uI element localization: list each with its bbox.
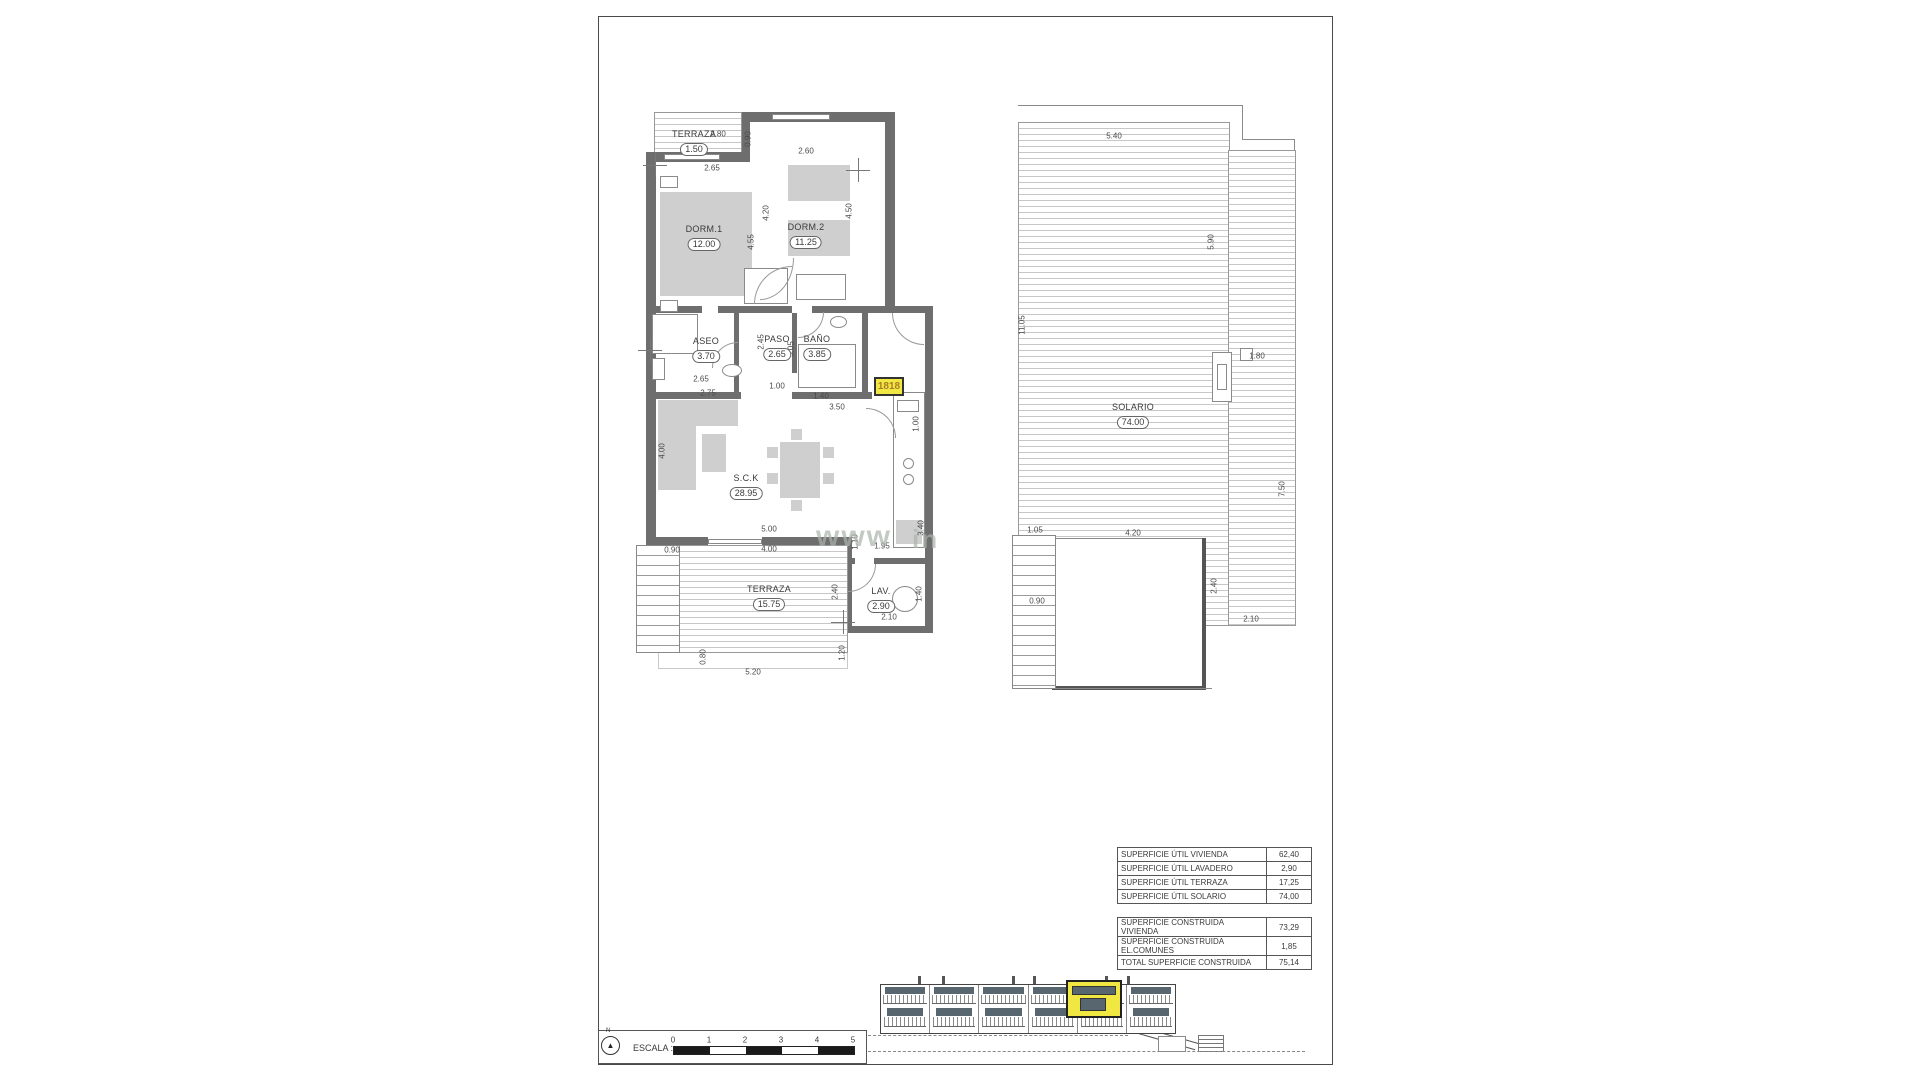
furniture-sofa — [696, 400, 738, 426]
furniture-dining-table — [780, 442, 820, 498]
surface-construida-table: SUPERFICIE CONSTRUIDA VIVIENDA 73,29 SUP… — [1117, 917, 1312, 970]
dim-label: 2.65 — [693, 375, 709, 384]
dim-label: 1.40 — [813, 392, 829, 401]
balcony-railing — [1081, 1017, 1123, 1027]
room-area-badge: 2.65 — [763, 348, 791, 360]
chimney — [1033, 976, 1036, 984]
wall-segment — [890, 306, 933, 313]
table-cell-label: SUPERFICIE ÚTIL TERRAZA — [1118, 876, 1267, 890]
elevation-bay — [1127, 985, 1175, 1033]
table-row: SUPERFICIE CONSTRUIDA EL.COMUNES 1,85 — [1118, 937, 1312, 956]
table-row: SUPERFICIE ÚTIL VIVIENDA 62,40 — [1118, 848, 1312, 862]
wall-segment — [845, 626, 933, 633]
wall-segment — [1202, 538, 1206, 690]
dim-label: 5.00 — [761, 525, 777, 534]
scale-segment — [710, 1047, 746, 1054]
dim-label: 4.00 — [761, 545, 777, 554]
chimney — [942, 976, 945, 984]
kitchen-sink — [897, 400, 919, 412]
dim-label: 4.50 — [845, 203, 854, 219]
room-label-solario: SOLARIO 74.00 — [1112, 402, 1154, 431]
wall-segment — [792, 392, 872, 399]
table-cell-label: SUPERFICIE ÚTIL LAVADERO — [1118, 862, 1267, 876]
wall-segment — [718, 306, 792, 313]
table-row: SUPERFICIE ÚTIL LAVADERO 2,90 — [1118, 862, 1312, 876]
balcony-railing — [933, 1017, 975, 1027]
building-elevation — [880, 984, 1176, 1034]
room-label-paso: PASO 2.65 — [763, 334, 791, 363]
stairs — [1012, 535, 1056, 689]
balcony-glazing — [934, 987, 974, 994]
dim-label: 1.40 — [915, 586, 924, 602]
window-glazing — [887, 1008, 923, 1016]
room-area-badge: 3.70 — [692, 350, 720, 362]
dim-label: 0.90 — [1029, 597, 1045, 606]
balcony-railing — [932, 995, 976, 1004]
scale-bar — [673, 1046, 855, 1055]
furniture-chair — [791, 429, 802, 440]
dim-label: 2.75 — [700, 389, 716, 398]
table-cell-label: SUPERFICIE ÚTIL SOLARIO — [1118, 890, 1267, 904]
watermark-text: www — [816, 520, 892, 554]
surface-util-table: SUPERFICIE ÚTIL VIVIENDA 62,40 SUPERFICI… — [1117, 847, 1312, 904]
elevation-bay — [930, 985, 979, 1033]
room-name: TERRAZA — [747, 584, 791, 594]
room-area-badge: 11.25 — [790, 236, 822, 248]
furniture-chair — [791, 500, 802, 511]
scale-tick: 4 — [815, 1036, 819, 1045]
table-cell-label: SUPERFICIE CONSTRUIDA EL.COMUNES — [1118, 937, 1267, 956]
room-name: LAV. — [867, 586, 895, 596]
wall-segment — [646, 537, 708, 545]
furniture-chair — [767, 447, 778, 458]
room-area-badge: 2.90 — [867, 600, 895, 612]
scale-tick: 0 — [671, 1036, 675, 1045]
table-cell-value: 75,14 — [1267, 956, 1312, 970]
boundary-line — [1012, 688, 1212, 689]
room-label-terraza: TERRAZA 15.75 — [747, 584, 791, 613]
dim-label: 1.00 — [912, 416, 921, 432]
room-label-dorm2: DORM.2 11.25 — [788, 222, 825, 251]
boundary-line — [1242, 139, 1295, 140]
wall-segment — [862, 313, 868, 392]
dim-label: 7.50 — [1278, 481, 1287, 497]
balcony-glazing — [885, 987, 925, 994]
chimney — [1127, 976, 1130, 984]
dim-label: 5.40 — [1106, 132, 1122, 141]
balcony-railing — [884, 1017, 926, 1027]
boundary-line — [1018, 105, 1242, 106]
window-glazing — [1072, 986, 1116, 995]
hob-burner — [903, 474, 914, 485]
scale-segment — [782, 1047, 818, 1054]
room-area-badge: 74.00 — [1117, 416, 1150, 428]
dim-label: 0.90 — [664, 546, 680, 555]
furniture-nightstand — [660, 176, 678, 188]
table-cell-value: 2,90 — [1267, 862, 1312, 876]
ground-dashed-line — [868, 1035, 1128, 1036]
table-cell-value: 74,00 — [1267, 890, 1312, 904]
room-label-terraza-top: TERRAZA 1.50 — [672, 129, 716, 158]
room-name: TERRAZA — [672, 129, 716, 139]
toilet — [830, 316, 847, 328]
table-row: TOTAL SUPERFICIE CONSTRUIDA 75,14 — [1118, 956, 1312, 970]
dim-label: 1.05 — [1027, 526, 1043, 535]
hob-burner — [903, 458, 914, 469]
dim-label: 0.80 — [699, 649, 708, 665]
room-area-badge: 12.00 — [688, 238, 721, 250]
dim-label: 2.60 — [798, 147, 814, 156]
window-glazing — [1080, 998, 1106, 1011]
table-cell-label: SUPERFICIE CONSTRUIDA VIVIENDA — [1118, 918, 1267, 937]
furniture-bed-dorm2 — [788, 165, 850, 201]
dim-label: 1.00 — [769, 382, 785, 391]
furniture-nightstand — [660, 300, 678, 312]
scale-tick: 5 — [851, 1036, 855, 1045]
chimney — [918, 976, 921, 984]
furniture-sideboard — [702, 434, 726, 472]
table-cell-label: SUPERFICIE ÚTIL VIVIENDA — [1118, 848, 1267, 862]
roof-vent — [1217, 364, 1227, 390]
table-cell-value: 17,25 — [1267, 876, 1312, 890]
highlighted-unit — [1066, 980, 1122, 1018]
table-row: SUPERFICIE ÚTIL SOLARIO 74,00 — [1118, 890, 1312, 904]
scale-tick: 3 — [779, 1036, 783, 1045]
dim-label: 4.20 — [762, 205, 771, 221]
dim-label: 3.50 — [829, 403, 845, 412]
scale-segment — [818, 1047, 854, 1054]
balcony-railing — [982, 1017, 1024, 1027]
balcony-railing — [1129, 995, 1173, 1004]
north-arrow-glyph: ▲ — [607, 1041, 615, 1050]
room-name: DORM.1 — [686, 224, 723, 234]
unit-number-tag: 1818 — [874, 377, 904, 396]
reference-cross — [638, 338, 662, 362]
stairs — [636, 545, 680, 653]
dim-label: 5.90 — [1207, 234, 1216, 250]
wall-segment — [885, 112, 895, 313]
furniture-chair — [767, 473, 778, 484]
ground-dashed-line — [868, 1051, 1305, 1052]
room-area-badge: 28.95 — [730, 487, 763, 499]
room-label-sck: S.C.K 28.95 — [730, 473, 763, 502]
sliding-door — [708, 539, 762, 544]
scale-segment — [746, 1047, 782, 1054]
room-area-badge: 1.50 — [680, 143, 708, 155]
scale-segment — [674, 1047, 710, 1054]
dim-label: 2.40 — [831, 584, 840, 600]
table-cell-value: 62,40 — [1267, 848, 1312, 862]
reference-cross — [831, 610, 855, 634]
table-cell-value: 1,85 — [1267, 937, 1312, 956]
wall-segment — [646, 392, 741, 399]
dim-label: 2.65 — [704, 164, 720, 173]
room-name: DORM.2 — [788, 222, 825, 232]
wall-segment — [874, 558, 933, 564]
balcony-glazing — [983, 987, 1023, 994]
dim-label: 1.20 — [838, 645, 847, 661]
furniture-chair — [823, 447, 834, 458]
dim-label: 4.55 — [747, 234, 756, 250]
elevation-bay — [881, 985, 930, 1033]
watermark-text: in — [912, 524, 939, 555]
room-area-badge: 3.85 — [803, 348, 831, 360]
reference-cross — [846, 158, 870, 182]
dim-label: 2.10 — [1243, 615, 1259, 624]
north-label: N — [606, 1028, 610, 1034]
table-row: SUPERFICIE ÚTIL TERRAZA 17,25 — [1118, 876, 1312, 890]
basement-structure — [1158, 1036, 1186, 1052]
dim-label: 11.05 — [1018, 315, 1027, 334]
dim-label: 4.00 — [658, 443, 667, 459]
balcony-railing — [883, 995, 927, 1004]
dim-label: 5.20 — [745, 668, 761, 677]
dim-label: 0.90 — [744, 131, 753, 147]
room-area-badge: 15.75 — [753, 598, 786, 610]
room-label-dorm1: DORM.1 12.00 — [686, 224, 723, 253]
reference-cross — [643, 153, 667, 177]
room-name: SOLARIO — [1112, 402, 1154, 412]
room-label-lav: LAV. 2.90 — [867, 586, 895, 615]
room-name: PASO — [763, 334, 791, 344]
wall-segment — [925, 313, 933, 630]
boundary-line — [1242, 105, 1243, 140]
scale-tick: 1 — [707, 1036, 711, 1045]
furniture-chair — [823, 473, 834, 484]
table-row: SUPERFICIE CONSTRUIDA VIVIENDA 73,29 — [1118, 918, 1312, 937]
balcony-railing — [1032, 1017, 1074, 1027]
scale-label: ESCALA : — [633, 1043, 673, 1053]
room-label-aseo: ASEO 3.70 — [692, 336, 720, 365]
dim-label: 2.40 — [1210, 578, 1219, 594]
scale-tick: 2 — [743, 1036, 747, 1045]
balcony-railing — [981, 995, 1025, 1004]
window-glazing — [985, 1008, 1021, 1016]
table-cell-label: TOTAL SUPERFICIE CONSTRUIDA — [1118, 956, 1267, 970]
window-glazing — [936, 1008, 972, 1016]
roof-courtyard-void — [1055, 538, 1205, 688]
room-name: S.C.K — [730, 473, 763, 483]
drawing-canvas: 1818 TERRAZA 1.50 DORM.1 12.00 DORM.2 11… — [0, 0, 1920, 1080]
balcony-glazing — [1131, 987, 1171, 994]
table-cell-value: 73,29 — [1267, 918, 1312, 937]
dim-label: 1.80 — [1249, 352, 1265, 361]
dim-label: 4.20 — [1125, 529, 1141, 538]
window — [772, 114, 830, 120]
north-arrow-icon: ▲ — [601, 1036, 620, 1055]
furniture-desk — [796, 274, 846, 300]
room-label-bano: BAÑO 3.85 — [803, 334, 831, 363]
elevation-bay — [979, 985, 1028, 1033]
boundary-line — [1056, 538, 1202, 539]
chimney — [1012, 976, 1015, 984]
room-name: BAÑO — [803, 334, 831, 344]
balcony-railing — [1130, 1017, 1172, 1027]
window-glazing — [1133, 1008, 1169, 1016]
solario-decking — [1228, 150, 1296, 626]
exterior-stairs — [1198, 1035, 1224, 1052]
room-name: ASEO — [692, 336, 720, 346]
